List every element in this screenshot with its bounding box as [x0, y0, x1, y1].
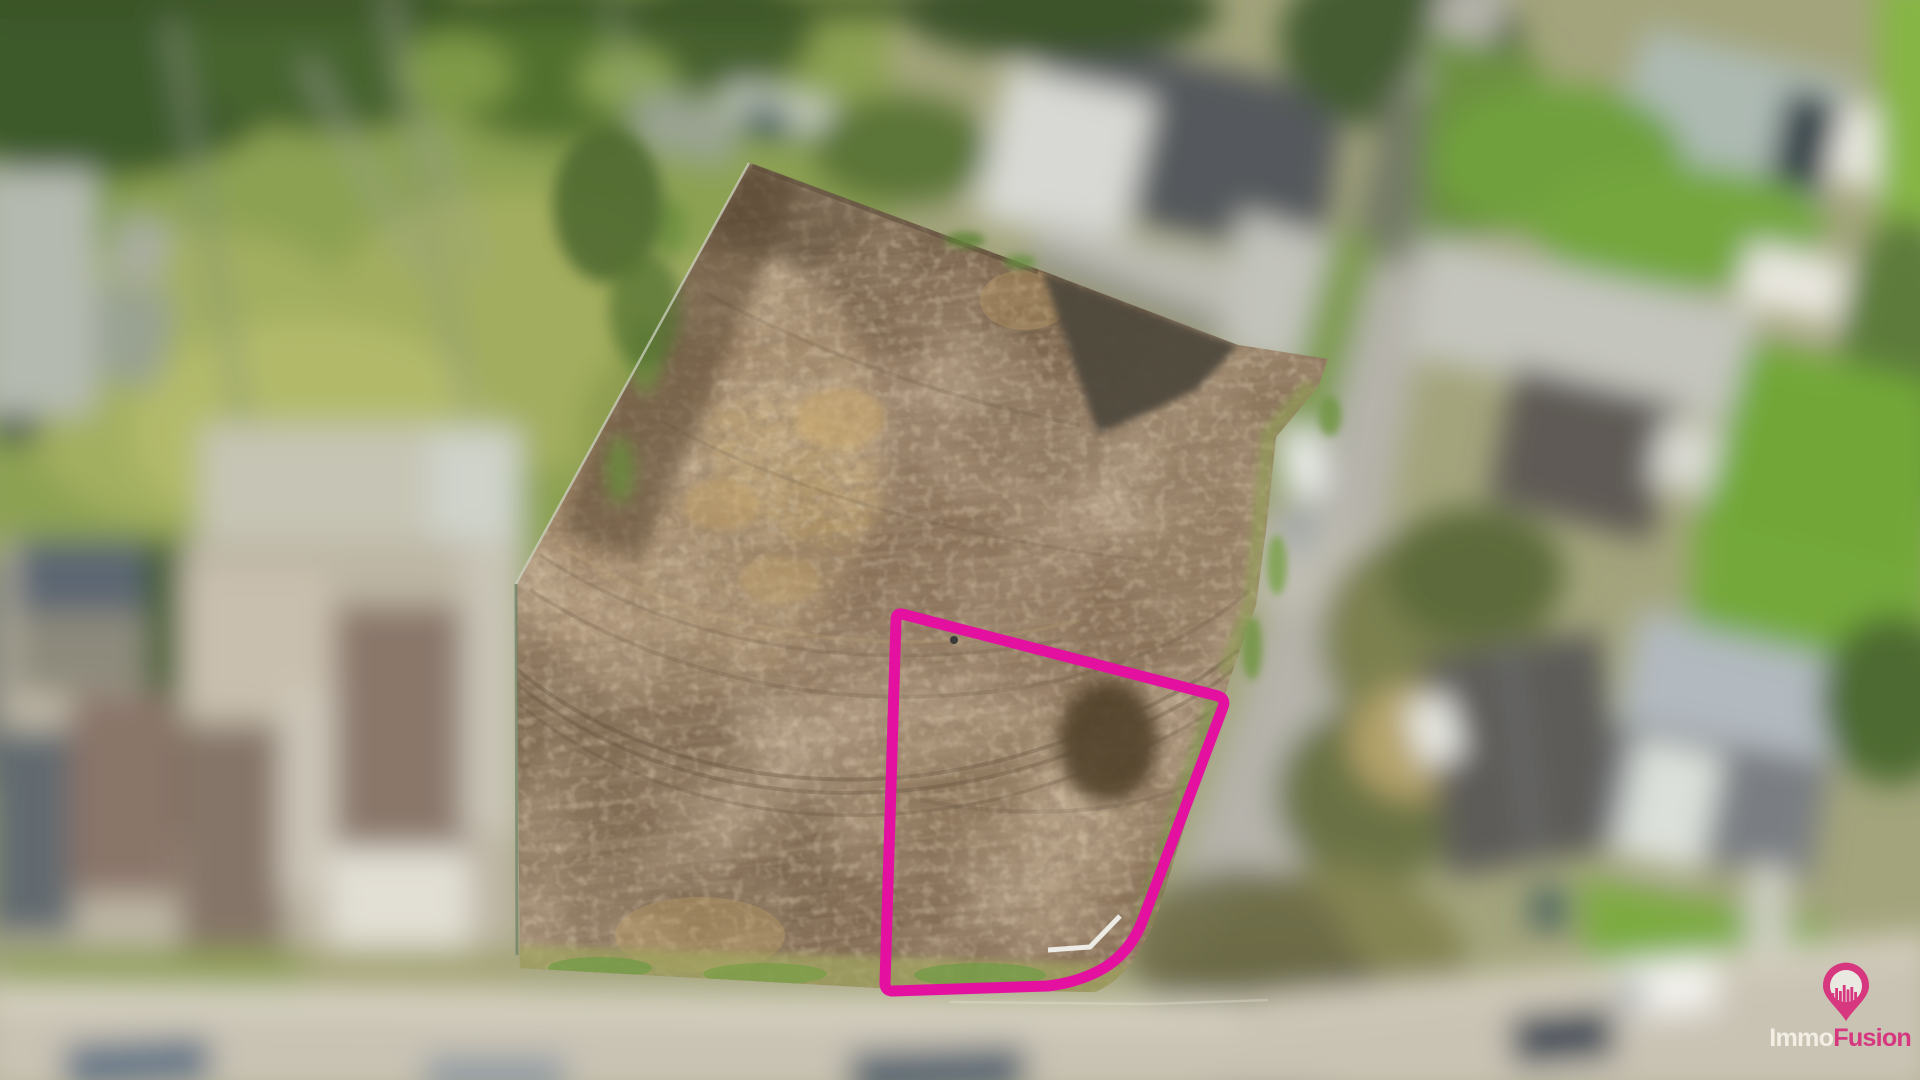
svg-text:ImmoFusion: ImmoFusion: [1769, 1024, 1911, 1052]
